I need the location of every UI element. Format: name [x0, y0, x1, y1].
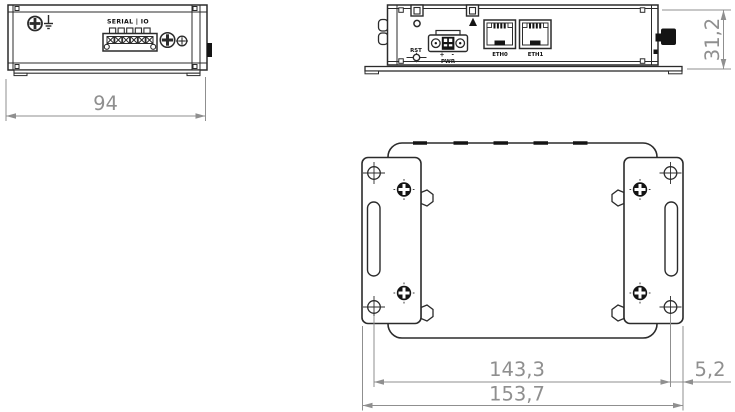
- rivet-icon: [193, 7, 197, 11]
- dim-94-value: 94: [93, 92, 118, 115]
- side-connector-bump: [379, 33, 389, 45]
- dimension-overall-width-153-7: 153,7: [363, 383, 684, 409]
- technical-drawing: SERIAL | IO: [0, 0, 735, 412]
- eth0-label: ETH0: [492, 52, 508, 58]
- antenna-mount-tab: [411, 5, 423, 16]
- side-view: SERIAL | IO: [6, 5, 212, 121]
- mounting-flange: [365, 67, 682, 74]
- side-connector-bump: [379, 20, 389, 32]
- mounting-slot: [665, 202, 678, 276]
- rivet-icon: [640, 8, 645, 13]
- dimension-edge-offset-5-2: 5,2: [671, 358, 732, 385]
- eth1-port: [520, 20, 552, 49]
- pwr-polarity-label: + -: [439, 52, 456, 59]
- clip-icon: [612, 190, 624, 206]
- front-view: RST + - PWR: [365, 5, 731, 74]
- rivet-icon: [399, 8, 404, 13]
- clip-icon: [612, 305, 624, 321]
- ground-screw-icon: [28, 17, 42, 31]
- mounting-slot: [368, 202, 381, 276]
- rivet-icon: [15, 65, 19, 69]
- antenna-stub-side: [207, 43, 212, 57]
- dim-143-3-value: 143,3: [489, 358, 545, 381]
- pwr-label: PWR: [441, 59, 456, 65]
- rivet-icon: [399, 59, 404, 64]
- rivet-icon: [15, 7, 19, 11]
- dim-31-2-value: 31,2: [701, 18, 724, 61]
- rivet-icon: [193, 65, 197, 69]
- antenna-mount-tab: [467, 5, 479, 16]
- small-screw-icon: [176, 36, 188, 46]
- dimension-width-94: 94: [6, 77, 206, 121]
- bottom-view: 143,3 5,2 153,7: [362, 143, 731, 411]
- eth0-port: [484, 20, 516, 49]
- rivet-icon: [640, 59, 645, 64]
- serial-io-label: SERIAL | IO: [107, 19, 149, 27]
- drawing-svg: SERIAL | IO: [0, 0, 735, 412]
- dim-5-2-value: 5,2: [694, 358, 725, 381]
- clip-icon: [421, 305, 433, 321]
- eth1-label: ETH1: [528, 52, 544, 58]
- phillips-screw-icon: [160, 33, 175, 48]
- mounting-plate-edge: [14, 70, 200, 76]
- clip-icon: [421, 190, 433, 206]
- serial-terminal-block: [103, 28, 157, 51]
- dim-153-7-value: 153,7: [489, 383, 545, 406]
- terminal-screw-icons: [107, 37, 153, 44]
